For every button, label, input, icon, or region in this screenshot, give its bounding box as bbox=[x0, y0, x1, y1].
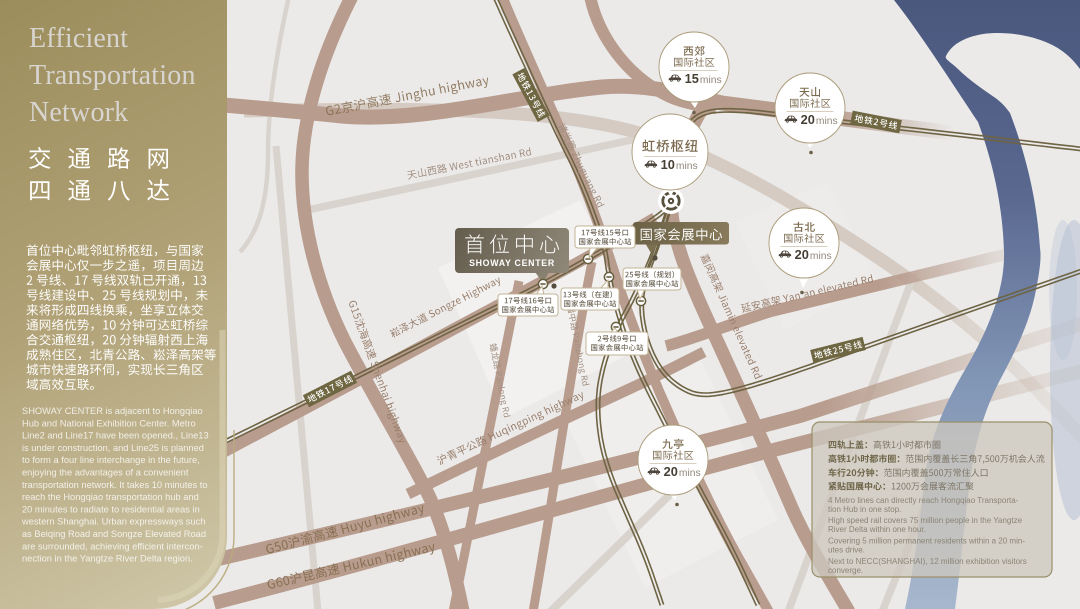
svg-text:Line2 and Line17 have been ope: Line2 and Line17 have been opened., Line… bbox=[22, 431, 209, 441]
svg-text:mins: mins bbox=[679, 468, 701, 479]
svg-text:SHOWAY CENTER: SHOWAY CENTER bbox=[469, 258, 555, 268]
svg-text:20: 20 bbox=[664, 464, 678, 479]
svg-text:transportation network. It tak: transportation network. It takes 10 minu… bbox=[22, 480, 208, 490]
svg-text:mins: mins bbox=[810, 251, 832, 262]
svg-text:Network: Network bbox=[29, 97, 128, 128]
svg-text:20: 20 bbox=[801, 112, 815, 127]
svg-text:20 minutes to radiate to resid: 20 minutes to radiate to residential are… bbox=[22, 504, 200, 514]
svg-text:Transportation: Transportation bbox=[29, 60, 196, 91]
svg-text:reach the Hongqiao transportat: reach the Hongqiao transportation hub an… bbox=[22, 492, 199, 502]
svg-text:Hub and National Exhibition Ce: Hub and National Exhibition Center. Metr… bbox=[22, 418, 196, 428]
svg-text:Efficient: Efficient bbox=[29, 23, 128, 54]
svg-text:are surrounded, achieving effi: are surrounded, achieving efficient inte… bbox=[22, 541, 203, 551]
svg-text:SHOWAY CENTER is adjacent to H: SHOWAY CENTER is adjacent to Hongqiao bbox=[22, 406, 203, 416]
svg-text:mins: mins bbox=[816, 116, 838, 127]
svg-text:utes drive.: utes drive. bbox=[828, 546, 865, 555]
svg-text:nection in the Yangtze River D: nection in the Yangtze River Delta regio… bbox=[22, 554, 193, 564]
svg-text:enjoying the advantages of a c: enjoying the advantages of a convenient bbox=[22, 468, 189, 478]
svg-text:as Beiqing Road and Songze Ele: as Beiqing Road and Songze Elevated Road bbox=[22, 529, 206, 539]
svg-text:15: 15 bbox=[685, 71, 699, 86]
svg-text:10: 10 bbox=[661, 157, 675, 172]
svg-text:4 Metro lines can directly rea: 4 Metro lines can directly reach Hongqia… bbox=[828, 496, 1019, 505]
svg-text:western Shanghai. Urban expres: western Shanghai. Urban expressways such bbox=[21, 517, 205, 527]
svg-text:Covering 5 million permanent r: Covering 5 million permanent residents w… bbox=[828, 537, 1025, 546]
svg-text:Next to NECC(SHANGHAI), 12 mil: Next to NECC(SHANGHAI), 12 million exhib… bbox=[828, 557, 1027, 566]
svg-text:mins: mins bbox=[700, 75, 722, 86]
svg-text:converge.: converge. bbox=[828, 566, 863, 575]
svg-text:River Delta within one hour.: River Delta within one hour. bbox=[828, 525, 926, 534]
svg-text:20: 20 bbox=[795, 247, 809, 262]
svg-text:is under construction, and Lin: is under construction, and Line25 is pla… bbox=[22, 443, 204, 453]
svg-text:High speed rail covers 75 mill: High speed rail covers 75 million people… bbox=[828, 516, 1023, 525]
svg-text:tion Hub in one stop.: tion Hub in one stop. bbox=[828, 505, 901, 514]
svg-text:to form a four line interchang: to form a four line interchange in the f… bbox=[22, 455, 200, 465]
svg-text:mins: mins bbox=[676, 161, 698, 172]
